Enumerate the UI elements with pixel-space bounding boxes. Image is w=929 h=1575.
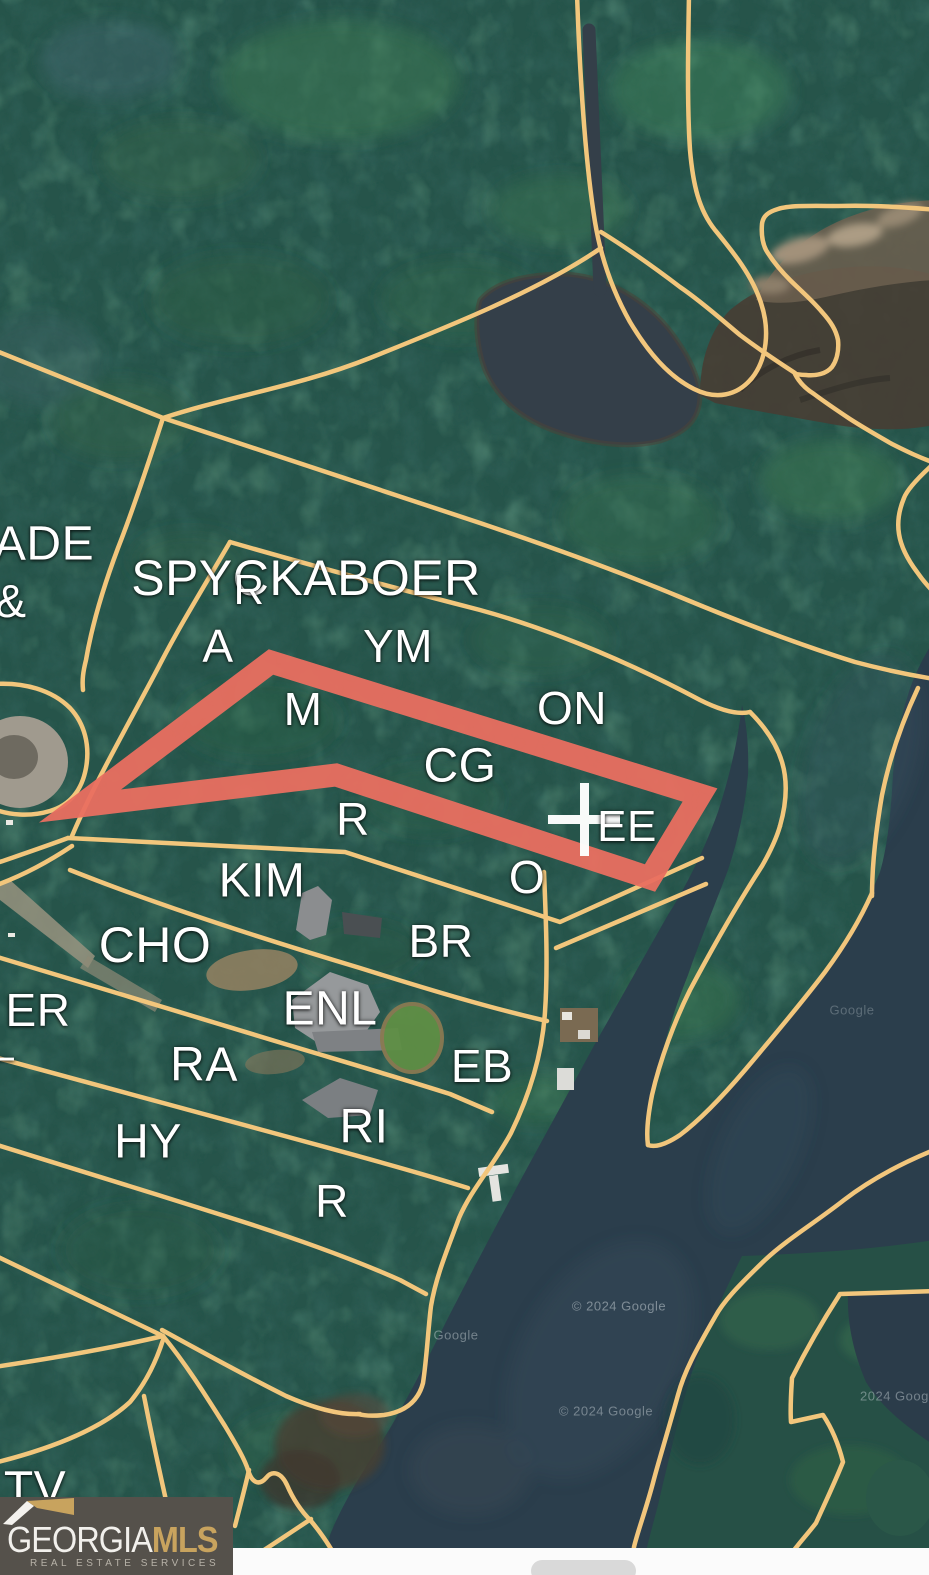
lawn <box>382 1004 442 1072</box>
logo-text-mls: MLS <box>152 1519 218 1560</box>
georgia-mls-logo: GEORGIAMLS REAL ESTATE SERVICES <box>0 1497 233 1575</box>
map-screenshot: ADE&SPYCKABOERRAYMMONCGREEOKIMCHOBRENLER… <box>0 0 929 1575</box>
bottom-bar-handle[interactable] <box>531 1560 636 1575</box>
logo-tagline: REAL ESTATE SERVICES <box>30 1558 219 1569</box>
logo-wordmark: GEORGIAMLS <box>7 1519 218 1561</box>
satellite-map[interactable] <box>0 0 929 1575</box>
logo-text-georgia: GEORGIA <box>7 1519 152 1560</box>
